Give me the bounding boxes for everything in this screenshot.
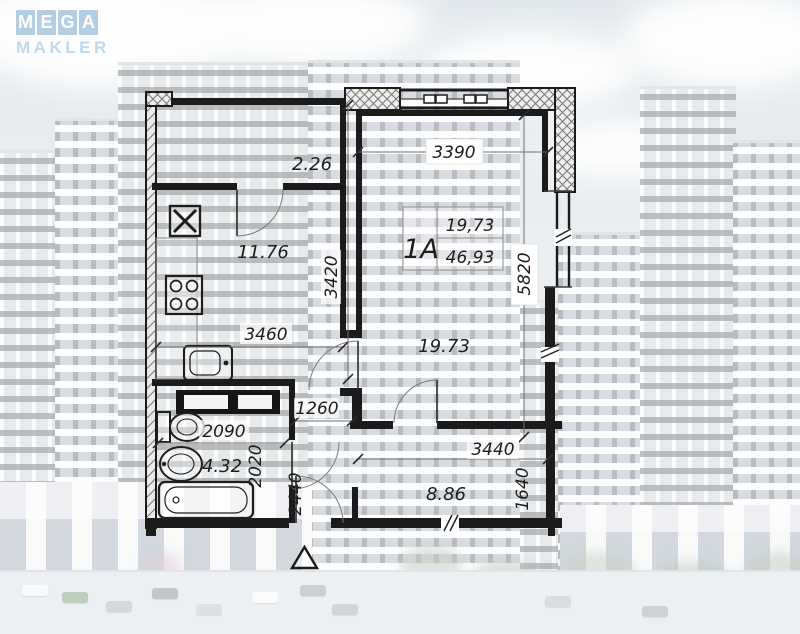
entrance-arrow-icon <box>292 547 317 568</box>
door-living-balcony-arc <box>394 380 437 423</box>
dim-kitchen-width: 3460 <box>244 325 287 345</box>
wall-living-right-upper <box>542 110 548 192</box>
wall-kitchen-top-b <box>283 183 346 190</box>
dim-balcony-depth: 1640 <box>513 467 533 510</box>
apartment-info-table: 1A 19,73 46,93 <box>403 207 503 270</box>
vent-shaft-icon <box>170 206 200 236</box>
kitchen-sink-icon <box>184 346 232 380</box>
dim-living-width: 3390 <box>432 143 475 163</box>
hall-area-label: 2.26 <box>292 154 332 175</box>
dim-hall-length: 3420 <box>322 255 342 298</box>
balcony-area-label: 8.86 <box>426 484 466 505</box>
wall-corridor-right-a <box>352 388 358 429</box>
doorway-jamb <box>340 330 362 338</box>
apartment-living-area: 19,73 <box>446 216 495 236</box>
wall-corner-block <box>146 92 172 106</box>
wall-hall-right <box>340 105 346 183</box>
wall-kitchen-top-a <box>152 183 237 190</box>
door-kitchen-hall-arc <box>237 190 283 236</box>
wall-left-outer <box>146 92 156 528</box>
wall-living-top-inner <box>356 110 548 116</box>
floor-plan: 2.26 11.76 19.73 4.32 8.86 3390 5820 346… <box>0 0 800 634</box>
kitchen-area-label: 11.76 <box>237 242 289 263</box>
washer-cabinet-icon <box>176 390 280 414</box>
dim-living-length: 5820 <box>515 252 535 295</box>
wall-insulated-right <box>555 88 575 192</box>
wall-living-left-upper <box>356 110 362 337</box>
wall-stub <box>146 518 156 536</box>
wall-stub <box>548 518 555 536</box>
dim-bathroom-length: 2020 <box>246 444 266 487</box>
dim-corridor-width: 1260 <box>295 399 338 419</box>
wall-bottom-left <box>146 518 289 528</box>
wall-balcony-top-b <box>437 421 548 429</box>
apartment-total-area: 46,93 <box>446 248 495 268</box>
dim-balcony-width: 3440 <box>471 440 514 460</box>
bathroom-area-label: 4.32 <box>202 456 242 477</box>
dim-bathroom-width: 2090 <box>202 422 245 442</box>
stove-icon <box>166 276 202 314</box>
screenshot-root: M E G A MAKLER <box>0 0 800 634</box>
wall-insulated-corner <box>345 88 400 110</box>
dim-corridor-length: 2440 <box>286 472 306 515</box>
bath-sink-icon <box>160 447 202 481</box>
living-area-label: 19.73 <box>418 336 470 357</box>
wall-balcony-right <box>546 425 555 523</box>
wall-hall-top <box>168 98 345 105</box>
bathtub-icon <box>159 482 253 518</box>
wall-corridor-right-b <box>352 487 358 518</box>
apartment-label: 1A <box>403 234 439 265</box>
door-kitchen-living-arc <box>309 341 358 390</box>
toilet-icon <box>157 412 204 442</box>
